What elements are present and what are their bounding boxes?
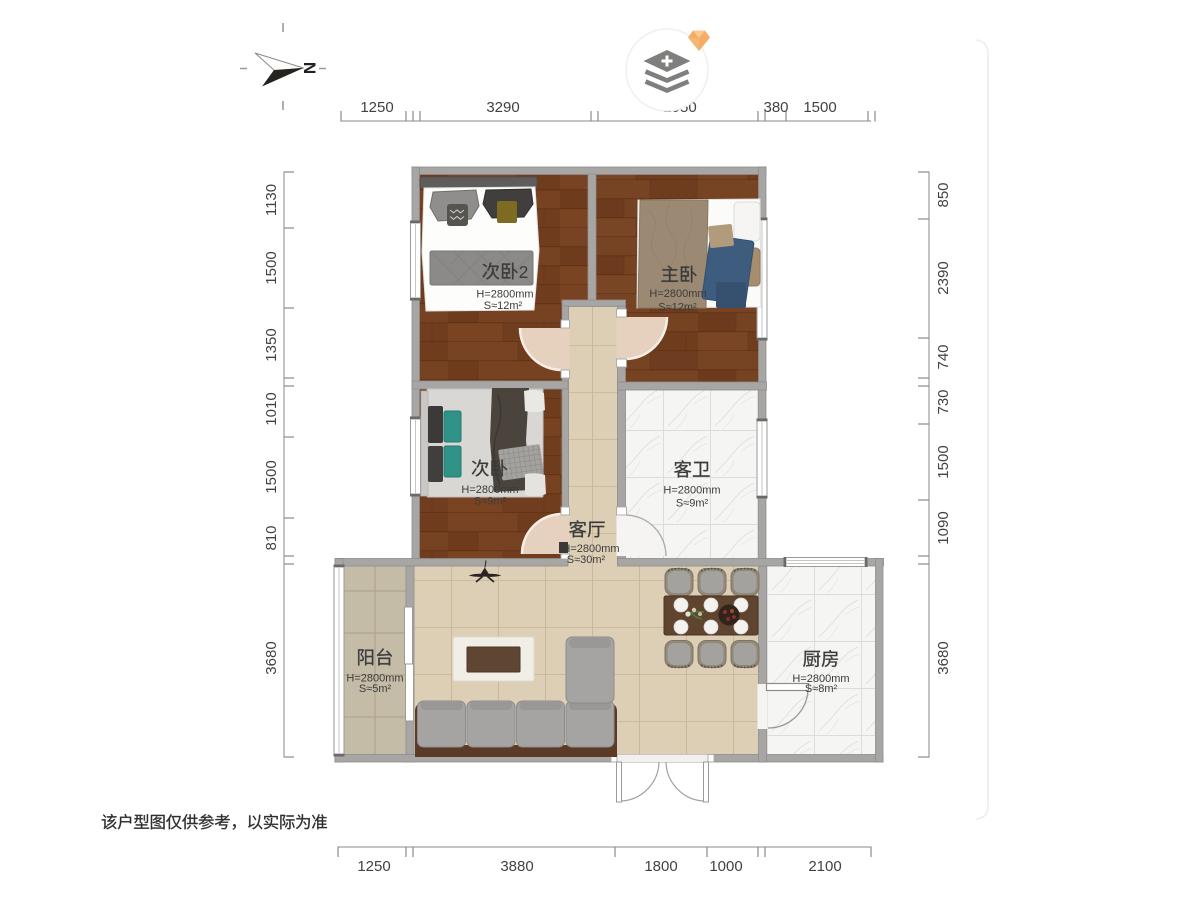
svg-text:1000: 1000: [709, 858, 742, 875]
svg-text:H=2800mm: H=2800mm: [649, 288, 706, 300]
svg-text:1500: 1500: [263, 460, 280, 493]
svg-text:3680: 3680: [263, 641, 280, 674]
svg-text:S≈12m²: S≈12m²: [484, 300, 523, 312]
svg-text:1500: 1500: [803, 99, 836, 116]
svg-text:S≈9m²: S≈9m²: [474, 496, 507, 508]
svg-text:380: 380: [763, 99, 788, 116]
svg-text:2390: 2390: [935, 261, 952, 294]
svg-text:1500: 1500: [263, 251, 280, 284]
svg-text:S≈9m²: S≈9m²: [676, 498, 709, 510]
svg-text:1500: 1500: [935, 445, 952, 478]
svg-text:1010: 1010: [263, 392, 280, 425]
svg-text:1250: 1250: [360, 99, 393, 116]
svg-text:1130: 1130: [263, 184, 280, 216]
svg-text:1090: 1090: [935, 511, 952, 544]
svg-text:2100: 2100: [808, 858, 841, 875]
svg-text:3290: 3290: [486, 99, 519, 116]
svg-text:H=2800mm: H=2800mm: [461, 484, 518, 496]
svg-text:S≈30m²: S≈30m²: [567, 554, 606, 566]
svg-text:H=2800mm: H=2800mm: [663, 485, 720, 497]
svg-text:S≈5m²: S≈5m²: [359, 683, 392, 695]
svg-text:2: 2: [519, 262, 529, 282]
svg-text:730: 730: [935, 389, 952, 414]
svg-text:810: 810: [263, 525, 280, 550]
svg-text:1800: 1800: [644, 858, 677, 875]
svg-text:850: 850: [935, 182, 952, 207]
svg-text:740: 740: [935, 344, 952, 369]
svg-text:3680: 3680: [935, 641, 952, 674]
svg-text:S≈8m²: S≈8m²: [805, 683, 838, 695]
svg-text:1350: 1350: [263, 328, 280, 361]
svg-text:N: N: [300, 62, 319, 74]
svg-text:3880: 3880: [500, 858, 533, 875]
svg-text:H=2800mm: H=2800mm: [476, 289, 533, 301]
svg-text:S≈12m²: S≈12m²: [658, 302, 697, 314]
svg-text:1250: 1250: [357, 858, 390, 875]
